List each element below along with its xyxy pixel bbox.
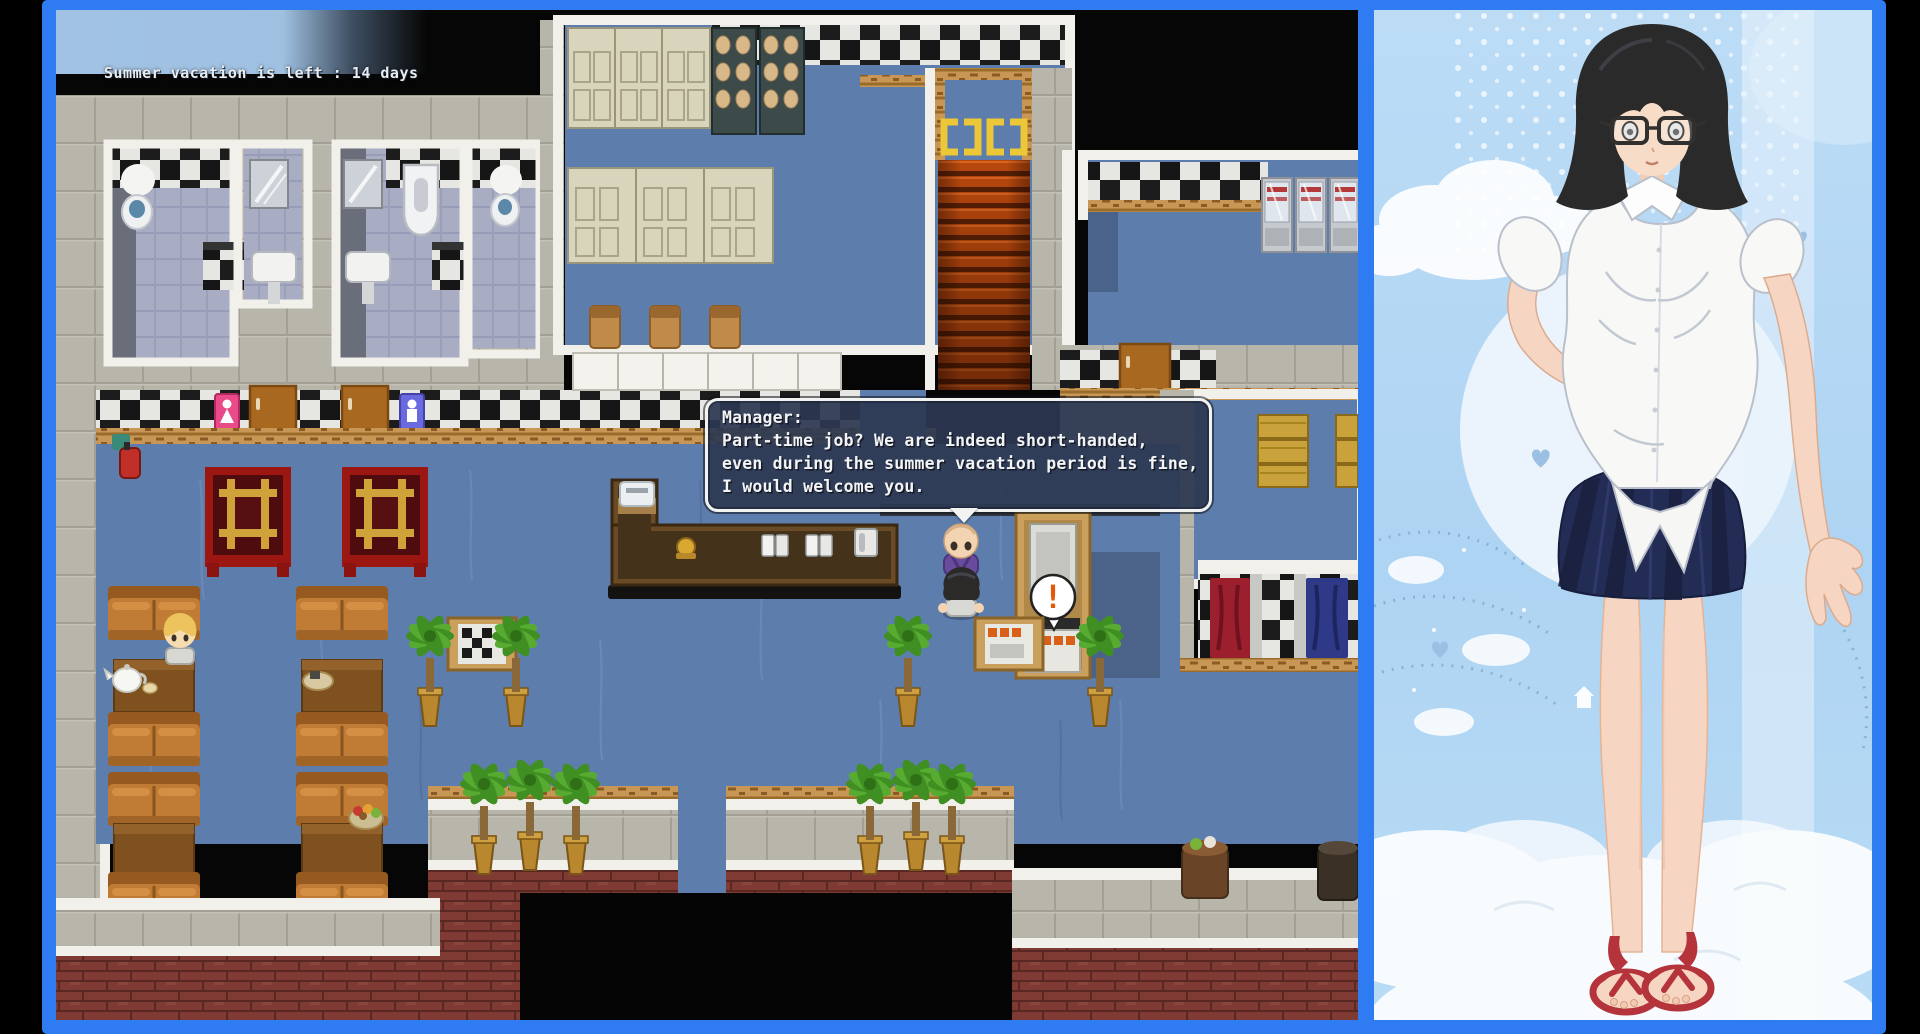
tile-map: ! xyxy=(56,10,1358,1020)
lockers xyxy=(568,28,710,128)
mirror-icon xyxy=(250,160,288,208)
small-cloud xyxy=(1388,556,1530,736)
portrait-art xyxy=(1374,10,1872,1020)
vending-machines[interactable] xyxy=(1262,178,1358,252)
wooden-crates xyxy=(1258,415,1358,487)
alert-exclamation: ! xyxy=(1043,578,1062,616)
dialog-text-line: Part-time job? We are indeed short-hande… xyxy=(722,429,1195,452)
dialog-text-line: even during the summer vacation period i… xyxy=(722,452,1195,475)
wall-cabinet xyxy=(975,618,1043,670)
dialog-pointer-icon xyxy=(950,508,978,523)
phone-icon xyxy=(855,529,877,556)
game-screen: ! xyxy=(0,0,1920,1034)
lockers xyxy=(568,168,773,263)
snack-bowl-icon xyxy=(303,671,333,690)
red-curtain[interactable] xyxy=(1210,578,1250,658)
register-icon xyxy=(618,482,656,514)
storage-pot xyxy=(1318,841,1358,900)
notification-text: Summer vacation is left : 14 days xyxy=(104,64,419,82)
urinal-icon xyxy=(404,165,438,235)
storage-pot xyxy=(1182,836,1228,898)
counter-bell-icon[interactable] xyxy=(676,538,696,559)
blue-curtain[interactable] xyxy=(1306,578,1348,658)
mens-sign xyxy=(400,394,424,432)
dialog-text-line: I would welcome you. xyxy=(722,475,1195,498)
womens-sign xyxy=(215,394,239,432)
bathroom-area xyxy=(96,95,540,390)
bathroom-door[interactable] xyxy=(250,386,296,432)
mirror-icon xyxy=(344,160,382,208)
storage-door[interactable] xyxy=(1120,344,1170,390)
character-portrait-panel xyxy=(1374,10,1872,1020)
dialog-box[interactable]: Manager: Part-time job? We are indeed sh… xyxy=(705,398,1212,512)
seated-npc[interactable] xyxy=(163,613,196,664)
notification-bar: Summer vacation is left : 14 days xyxy=(56,10,434,74)
game-map-viewport[interactable]: ! xyxy=(56,10,1358,1020)
staircase[interactable] xyxy=(925,68,1072,390)
bath-entrance[interactable] xyxy=(1180,560,1358,672)
reception-desk xyxy=(573,353,841,390)
bottom-exit[interactable] xyxy=(520,893,1012,1020)
dialog-speaker: Manager: xyxy=(722,406,1195,429)
vending-room xyxy=(1078,150,1358,345)
bathroom-door[interactable] xyxy=(342,386,388,432)
chair-icon xyxy=(590,306,740,348)
house-doodle-icon xyxy=(1574,686,1594,708)
